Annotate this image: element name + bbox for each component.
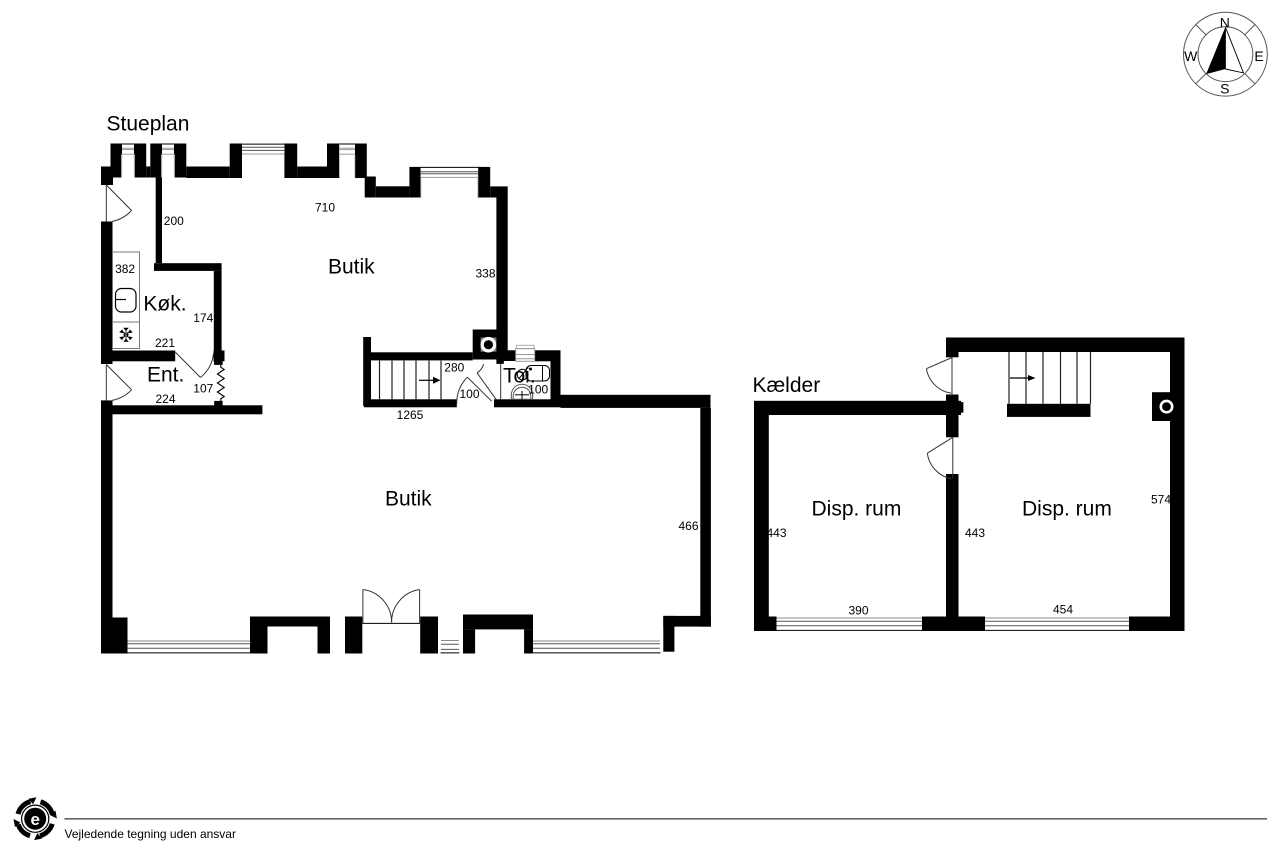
svg-text:443: 443 xyxy=(965,526,985,540)
svg-text:107: 107 xyxy=(193,382,213,396)
svg-text:Stueplan: Stueplan xyxy=(107,113,190,136)
svg-text:382: 382 xyxy=(115,262,135,276)
svg-text:Køk.: Køk. xyxy=(143,293,186,316)
svg-text:200: 200 xyxy=(164,214,184,228)
svg-text:100: 100 xyxy=(528,383,548,397)
svg-text:710: 710 xyxy=(315,201,335,215)
svg-text:Ent.: Ent. xyxy=(147,364,184,387)
svg-text:443: 443 xyxy=(766,526,786,540)
svg-text:E: E xyxy=(1254,48,1263,64)
svg-text:Butik: Butik xyxy=(328,256,375,279)
svg-text:N: N xyxy=(1220,15,1230,31)
svg-text:280: 280 xyxy=(444,361,464,375)
svg-text:Kælder: Kælder xyxy=(753,374,821,397)
svg-text:1265: 1265 xyxy=(397,408,424,422)
svg-text:574: 574 xyxy=(1151,493,1171,507)
svg-text:Disp. rum: Disp. rum xyxy=(812,498,902,521)
svg-text:454: 454 xyxy=(1053,603,1073,617)
svg-text:174: 174 xyxy=(193,311,213,325)
svg-text:Butik: Butik xyxy=(385,488,432,511)
svg-text:390: 390 xyxy=(848,604,868,618)
svg-text:100: 100 xyxy=(459,387,479,401)
svg-text:Vejledende tegning uden ansvar: Vejledende tegning uden ansvar xyxy=(65,827,236,841)
svg-text:S: S xyxy=(1220,81,1229,97)
svg-text:338: 338 xyxy=(475,267,495,281)
svg-text:466: 466 xyxy=(678,519,698,533)
svg-text:224: 224 xyxy=(155,392,175,406)
svg-text:e: e xyxy=(30,810,39,829)
svg-text:221: 221 xyxy=(155,336,175,350)
svg-text:Disp. rum: Disp. rum xyxy=(1022,498,1112,521)
svg-text:W: W xyxy=(1184,48,1198,64)
